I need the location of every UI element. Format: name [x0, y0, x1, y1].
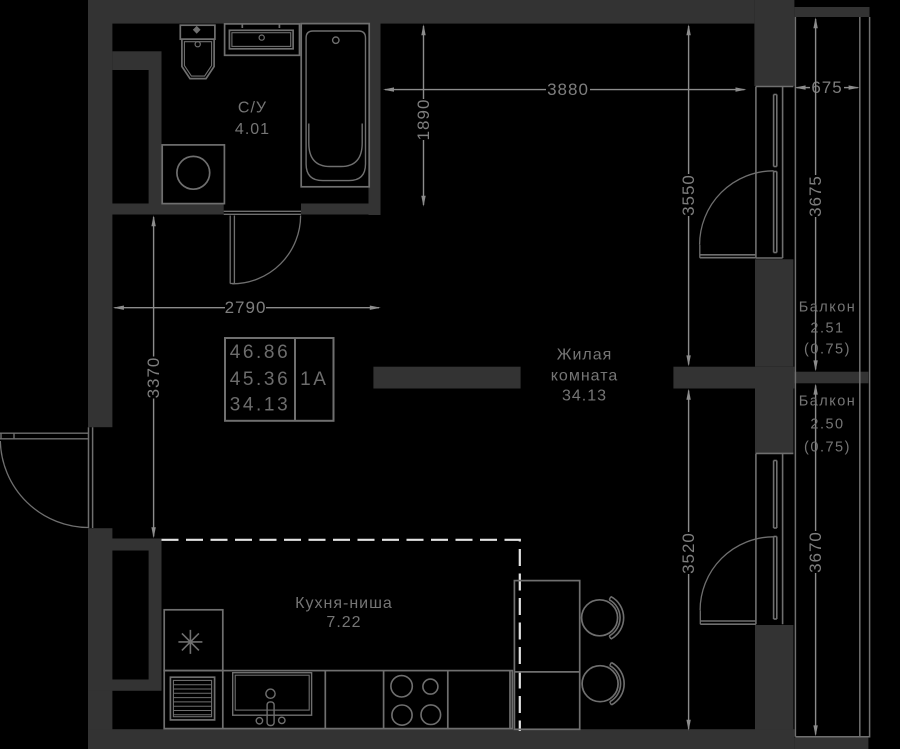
svg-text:3520: 3520 [679, 532, 698, 574]
svg-text:С/У: С/У [238, 99, 267, 116]
svg-text:2.50: 2.50 [810, 417, 844, 433]
svg-text:1890: 1890 [414, 99, 433, 141]
svg-text:Балкон: Балкон [799, 394, 857, 410]
svg-text:Балкон: Балкон [799, 299, 857, 315]
svg-text:45.36: 45.36 [230, 369, 291, 390]
svg-text:46.86: 46.86 [230, 342, 291, 363]
svg-text:3670: 3670 [806, 531, 825, 573]
svg-text:34.13: 34.13 [230, 395, 291, 416]
svg-text:(0.75): (0.75) [804, 439, 851, 455]
svg-text:Кухня-ниша: Кухня-ниша [295, 595, 393, 612]
svg-text:7.22: 7.22 [326, 614, 361, 631]
svg-text:4.01: 4.01 [235, 121, 270, 138]
svg-text:2.51: 2.51 [810, 320, 844, 336]
svg-text:34.13: 34.13 [562, 388, 607, 405]
svg-text:2790: 2790 [225, 298, 267, 317]
svg-text:3880: 3880 [547, 80, 589, 99]
svg-text:3550: 3550 [679, 174, 698, 216]
svg-text:Жилая: Жилая [557, 347, 613, 364]
svg-text:3675: 3675 [806, 175, 825, 217]
svg-text:1А: 1А [300, 369, 328, 390]
svg-text:(0.75): (0.75) [804, 342, 851, 358]
svg-text:комната: комната [551, 367, 619, 384]
svg-text:3370: 3370 [144, 357, 163, 399]
